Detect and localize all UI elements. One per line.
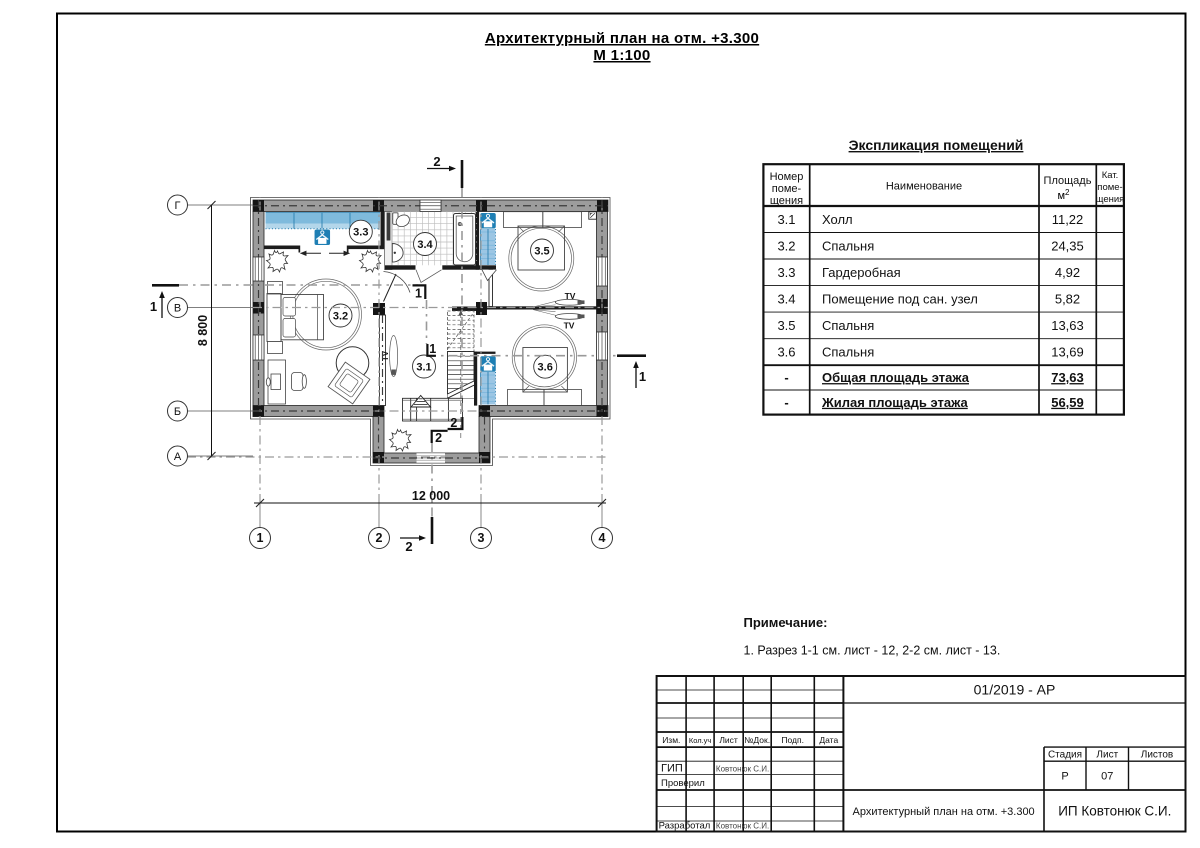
- svg-text:2: 2: [376, 531, 383, 545]
- svg-text:Разработал: Разработал: [659, 821, 711, 832]
- svg-text:3.2: 3.2: [777, 238, 795, 253]
- svg-text:73,63: 73,63: [1051, 370, 1084, 385]
- svg-text:Дата: Дата: [819, 735, 838, 745]
- svg-text:Жилая площадь этажа: Жилая площадь этажа: [821, 395, 968, 410]
- svg-text:3.4: 3.4: [777, 291, 795, 306]
- svg-text:3.3: 3.3: [777, 265, 795, 280]
- svg-text:Изм.: Изм.: [662, 735, 680, 745]
- svg-text:12 000: 12 000: [412, 489, 450, 503]
- svg-text:Спальня: Спальня: [822, 318, 874, 333]
- svg-text:ГИП: ГИП: [661, 763, 683, 775]
- svg-text:М 1:100: М 1:100: [593, 47, 650, 64]
- svg-text:Помещение под сан. узел: Помещение под сан. узел: [822, 291, 978, 306]
- svg-text:4,92: 4,92: [1055, 265, 1080, 280]
- svg-text:11,22: 11,22: [1052, 212, 1084, 227]
- svg-text:Р: Р: [1061, 771, 1068, 783]
- svg-text:поме-: поме-: [772, 183, 802, 195]
- svg-text:8 800: 8 800: [196, 315, 210, 346]
- svg-text:-: -: [784, 395, 788, 410]
- svg-text:24,35: 24,35: [1051, 238, 1084, 253]
- svg-text:3.6: 3.6: [538, 362, 553, 374]
- svg-text:3.2: 3.2: [333, 311, 348, 323]
- svg-text:В: В: [174, 303, 181, 315]
- svg-text:13,63: 13,63: [1051, 318, 1084, 333]
- svg-text:1: 1: [639, 369, 646, 384]
- svg-text:3.4: 3.4: [417, 239, 433, 251]
- svg-text:Экспликация помещений: Экспликация помещений: [849, 137, 1024, 153]
- svg-text:3.5: 3.5: [534, 246, 549, 258]
- svg-text:Кол.уч: Кол.уч: [689, 736, 712, 745]
- svg-text:3.5: 3.5: [777, 318, 795, 333]
- svg-text:Проверил: Проверил: [661, 778, 705, 789]
- svg-text:07: 07: [1101, 771, 1113, 783]
- svg-text:№Док.: №Док.: [744, 735, 770, 745]
- svg-text:3.1: 3.1: [777, 212, 795, 227]
- svg-text:Лист: Лист: [1096, 750, 1118, 761]
- svg-text:Ковтонюк С.И.: Ковтонюк С.И.: [716, 822, 769, 831]
- svg-text:56,59: 56,59: [1051, 395, 1084, 410]
- svg-text:Лист: Лист: [719, 735, 738, 745]
- svg-text:Примечание:: Примечание:: [744, 615, 828, 630]
- svg-text:Спальня: Спальня: [822, 344, 874, 359]
- svg-text:1: 1: [429, 342, 436, 356]
- svg-text:Г: Г: [175, 200, 181, 212]
- svg-text:1: 1: [257, 531, 264, 545]
- svg-text:-: -: [784, 370, 788, 385]
- svg-text:А: А: [174, 451, 182, 463]
- svg-text:Листов: Листов: [1141, 750, 1174, 761]
- svg-text:5,82: 5,82: [1055, 291, 1080, 306]
- svg-text:Номер: Номер: [770, 171, 804, 183]
- svg-text:щения: щения: [1096, 194, 1125, 205]
- svg-text:3.1: 3.1: [416, 362, 431, 374]
- svg-text:13,69: 13,69: [1051, 344, 1084, 359]
- svg-text:Архитектурный план на отм. +3.: Архитектурный план на отм. +3.300: [485, 30, 759, 47]
- svg-text:Площадь: Площадь: [1044, 175, 1092, 187]
- svg-text:Общая площадь этажа: Общая площадь этажа: [822, 370, 970, 385]
- svg-text:Архитектурный план на отм. +3.: Архитектурный план на отм. +3.300: [852, 806, 1034, 818]
- svg-text:щения: щения: [770, 195, 803, 207]
- svg-text:Кат.: Кат.: [1102, 170, 1119, 181]
- svg-text:Подп.: Подп.: [781, 735, 804, 745]
- svg-text:1. Разрез 1-1 см. лист - 12, 2: 1. Разрез 1-1 см. лист - 12, 2-2 см. лис…: [744, 644, 1001, 658]
- svg-text:1: 1: [150, 299, 157, 314]
- svg-text:Стадия: Стадия: [1048, 750, 1082, 761]
- svg-text:2: 2: [433, 154, 440, 169]
- svg-text:3.3: 3.3: [353, 227, 368, 239]
- svg-text:3: 3: [478, 531, 485, 545]
- svg-text:TV: TV: [565, 291, 576, 301]
- svg-text:поме-: поме-: [1097, 182, 1122, 193]
- svg-text:Холл: Холл: [822, 212, 853, 227]
- svg-text:Наименование: Наименование: [886, 181, 962, 193]
- svg-text:4: 4: [599, 531, 606, 545]
- svg-text:Б: Б: [174, 406, 181, 418]
- svg-text:Гардеробная: Гардеробная: [822, 265, 901, 280]
- svg-text:Ковтонюк С.И.: Ковтонюк С.И.: [716, 765, 769, 774]
- svg-text:2: 2: [435, 431, 442, 445]
- svg-text:3.6: 3.6: [777, 344, 795, 359]
- svg-text:Спальня: Спальня: [822, 238, 874, 253]
- svg-text:TV: TV: [564, 320, 575, 330]
- svg-text:01/2019 - АР: 01/2019 - АР: [974, 682, 1056, 698]
- svg-text:ИП Ковтонюк С.И.: ИП Ковтонюк С.И.: [1058, 804, 1171, 819]
- svg-text:1: 1: [415, 287, 422, 301]
- svg-text:2: 2: [405, 539, 412, 554]
- svg-text:2: 2: [450, 416, 457, 430]
